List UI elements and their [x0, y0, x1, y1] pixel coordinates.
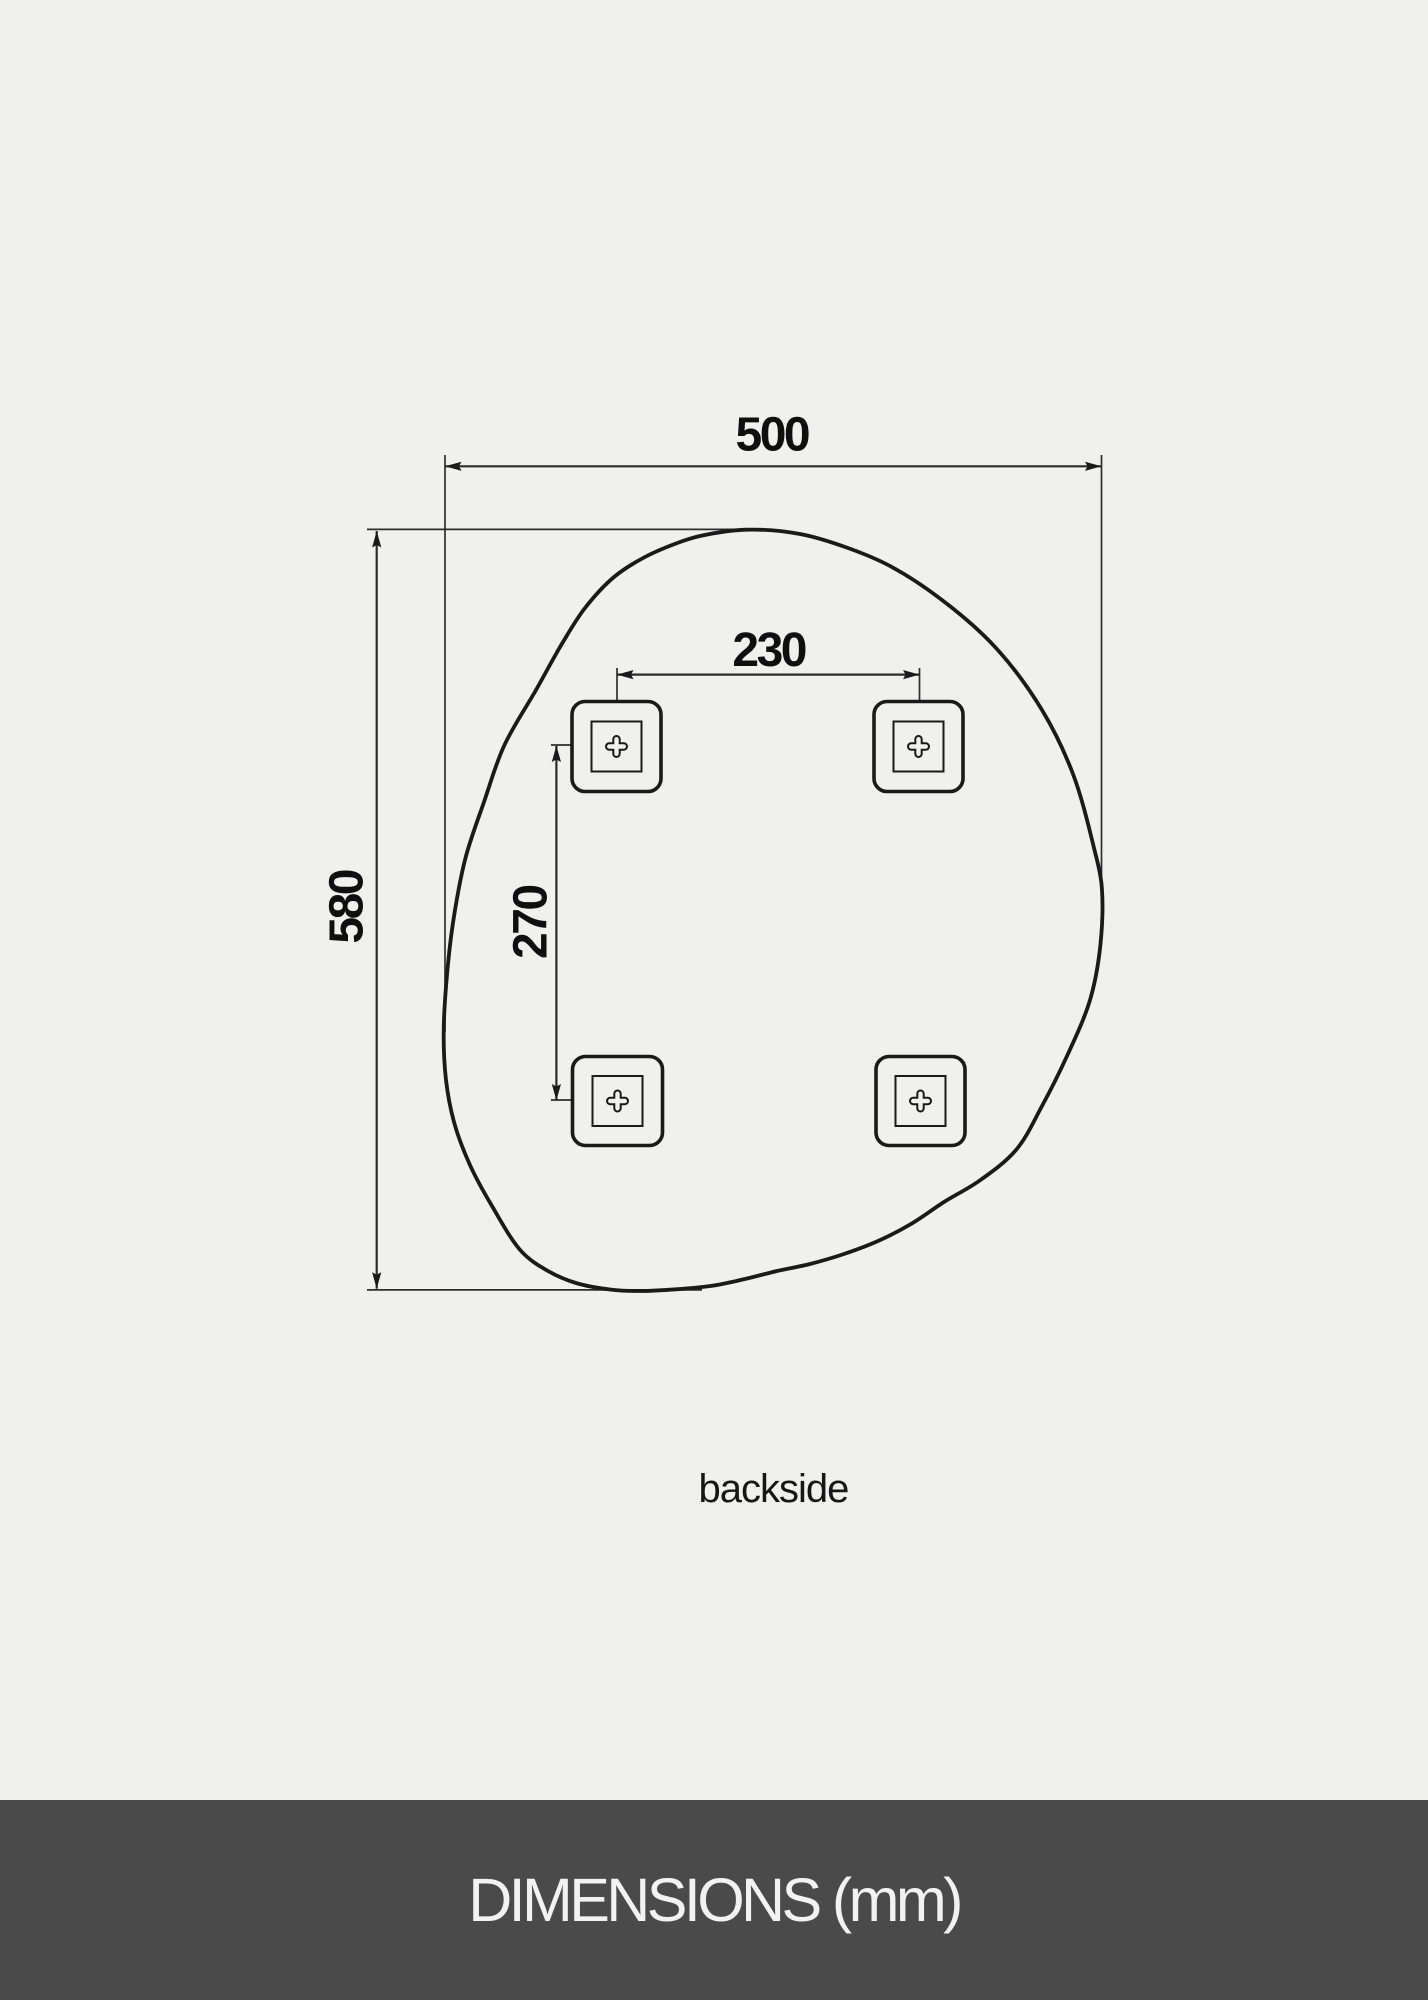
svg-text:backside: backside: [698, 1467, 848, 1511]
svg-text:270: 270: [504, 886, 557, 959]
svg-text:580: 580: [321, 870, 374, 943]
svg-text:230: 230: [732, 624, 805, 677]
svg-text:500: 500: [736, 409, 809, 462]
